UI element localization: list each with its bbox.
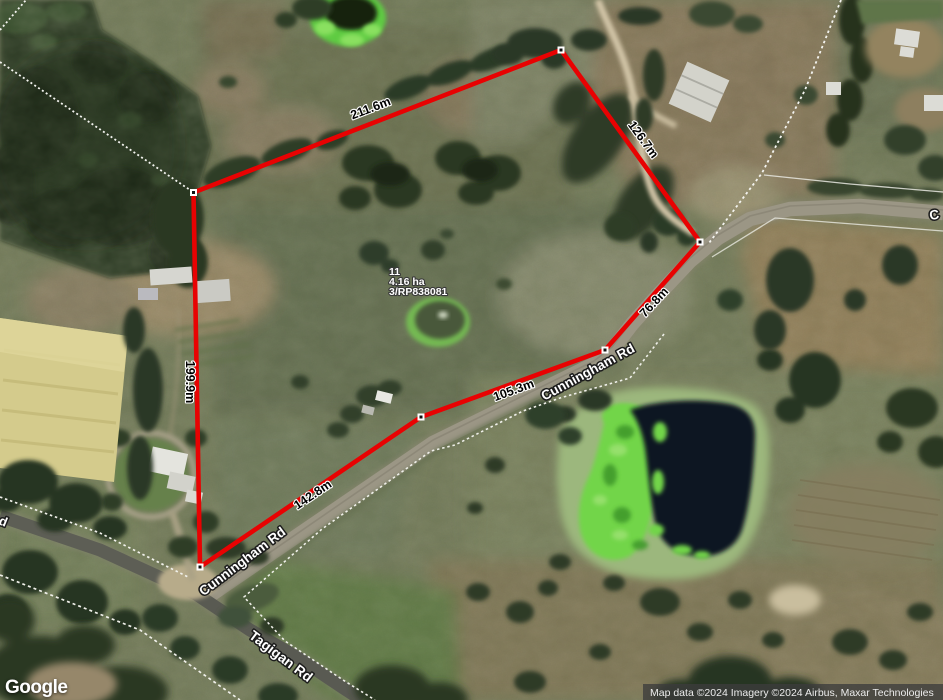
svg-text:3/RP838081: 3/RP838081	[389, 286, 448, 298]
svg-text:199.9m: 199.9m	[183, 361, 197, 403]
svg-text:Map data ©2024 Imagery ©2024 A: Map data ©2024 Imagery ©2024 Airbus, Max…	[650, 687, 934, 699]
svg-text:Google: Google	[5, 677, 67, 698]
